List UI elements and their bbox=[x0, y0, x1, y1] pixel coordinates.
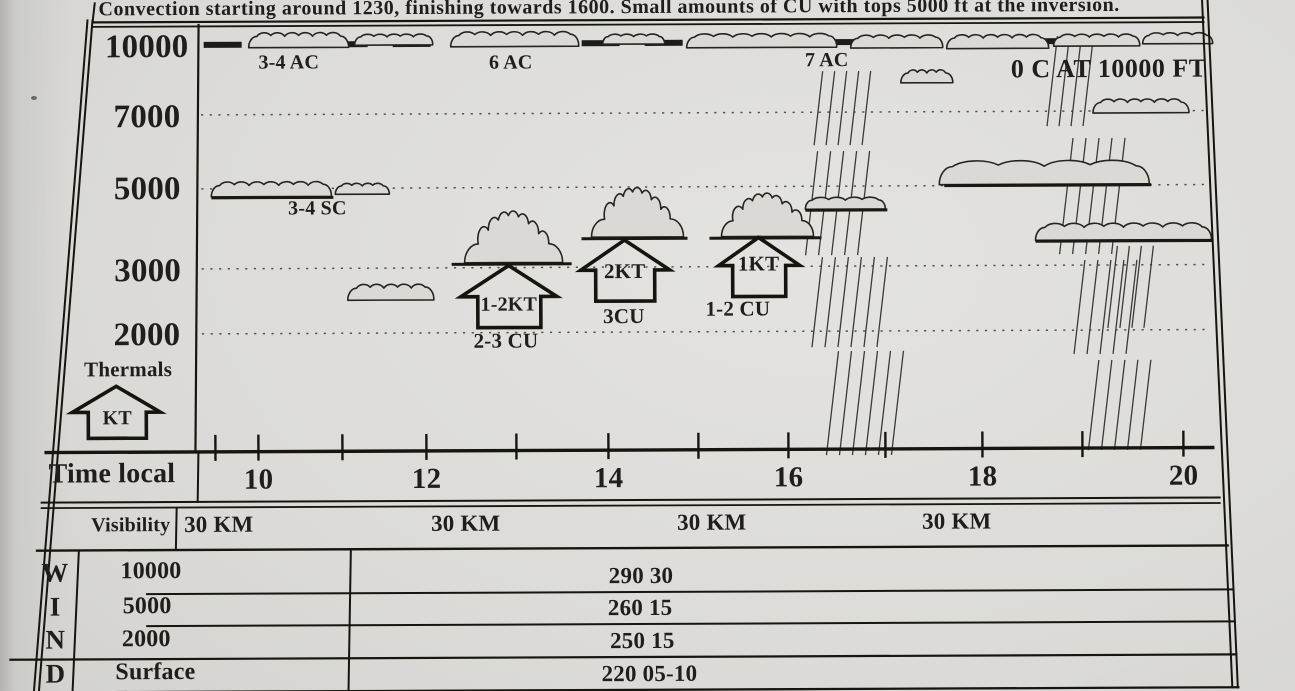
cu-mid-label: 3CU bbox=[603, 306, 645, 328]
chart-page: Convection starting around 1230, finishi… bbox=[0, 0, 1295, 691]
visibility-value-1: 30 KM bbox=[184, 513, 253, 537]
thermal-left-label: 1-2KT bbox=[480, 294, 537, 315]
altitude-label-2000: 2000 bbox=[113, 318, 180, 353]
ac-right-label: 7 AC bbox=[805, 50, 849, 71]
wind-value-surface: 220 05-10 bbox=[602, 662, 698, 686]
altitude-label-10000: 10000 bbox=[105, 30, 189, 65]
visibility-value-4: 30 KM bbox=[922, 509, 991, 533]
visibility-label: Visibility bbox=[91, 515, 170, 536]
altitude-label-7000: 7000 bbox=[113, 100, 180, 135]
thermal-mid-label: 2KT bbox=[604, 261, 646, 283]
time-hour-18: 18 bbox=[968, 461, 998, 491]
visibility-value-2: 30 KM bbox=[431, 512, 500, 536]
wind-letter-w: W bbox=[41, 558, 68, 586]
time-tick-marks bbox=[215, 431, 1183, 461]
time-hour-10: 10 bbox=[244, 465, 274, 495]
wind-level-surface: Surface bbox=[115, 660, 195, 685]
time-hour-12: 12 bbox=[412, 464, 442, 494]
wind-letter-i: I bbox=[50, 593, 61, 621]
time-hour-16: 16 bbox=[774, 462, 804, 492]
wind-value-10000: 290 30 bbox=[609, 564, 674, 588]
time-hour-20: 20 bbox=[1169, 461, 1199, 491]
cu-right-label: 1-2 CU bbox=[705, 298, 770, 320]
time-axis-label: Time local bbox=[48, 459, 175, 489]
photographed-forecast-sheet: Convection starting around 1230, finishi… bbox=[0, 0, 1295, 691]
virga-shower-hatching bbox=[805, 36, 1155, 456]
thermals-legend-title: Thermals bbox=[84, 359, 172, 381]
thermals-legend-unit: KT bbox=[103, 408, 132, 429]
sc-label: 3-4 SC bbox=[288, 198, 347, 219]
ac-left-label: 3-4 AC bbox=[258, 52, 319, 73]
wind-letter-d: D bbox=[45, 660, 65, 688]
freezing-level-label: 0 C AT 10000 FT bbox=[1011, 55, 1207, 83]
wind-level-2000: 2000 bbox=[122, 627, 171, 652]
wind-value-2000: 250 15 bbox=[610, 629, 675, 653]
visibility-value-3: 30 KM bbox=[677, 511, 746, 535]
wind-letter-n: N bbox=[45, 626, 65, 654]
thermal-right-label: 1KT bbox=[738, 253, 780, 275]
ac-mid-label: 6 AC bbox=[489, 52, 533, 73]
time-hour-14: 14 bbox=[594, 463, 624, 493]
wind-level-10000: 10000 bbox=[120, 559, 181, 584]
wind-level-5000: 5000 bbox=[123, 594, 172, 619]
wind-value-5000: 260 15 bbox=[608, 596, 673, 620]
cu-left-label: 2-3 CU bbox=[474, 330, 539, 352]
altitude-label-3000: 3000 bbox=[114, 254, 181, 289]
altitude-label-5000: 5000 bbox=[114, 172, 181, 207]
